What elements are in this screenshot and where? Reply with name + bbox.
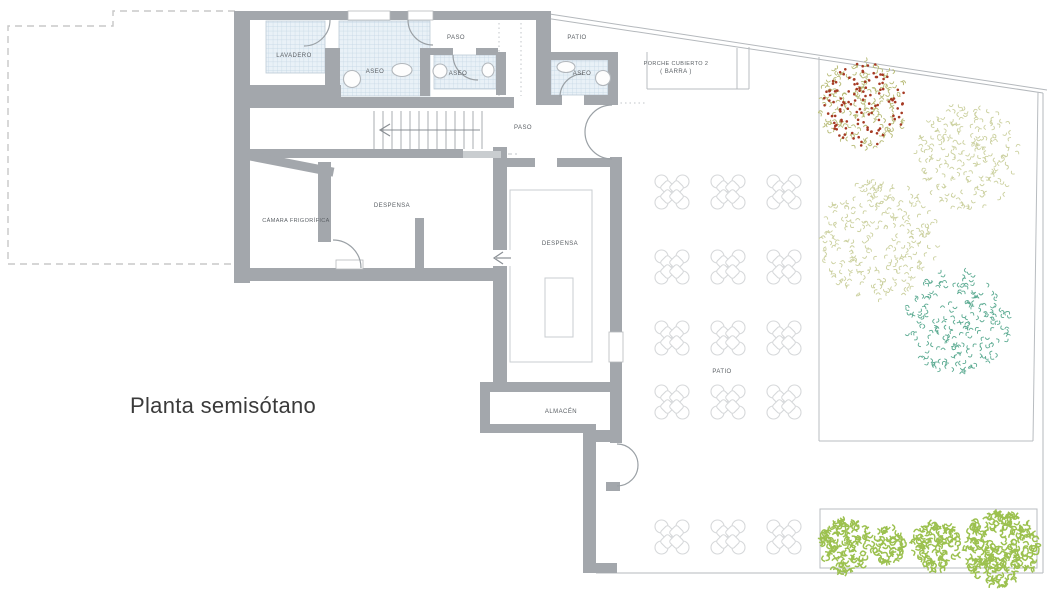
- leaf: [1000, 326, 1004, 331]
- room-label: PORCHE CUBIERTO 2: [644, 61, 709, 67]
- leaf: [971, 154, 976, 158]
- leaf: [857, 229, 862, 233]
- leaf: [927, 210, 931, 214]
- leaf: [899, 126, 904, 129]
- leaf: [825, 119, 830, 123]
- leaf: [895, 259, 898, 264]
- wall-wing-bottom-stub: [583, 563, 617, 573]
- leaf: [849, 111, 851, 116]
- berry: [828, 99, 831, 102]
- leaf: [873, 289, 877, 294]
- leaf: [845, 214, 849, 219]
- leaf: [921, 223, 925, 228]
- window-top-1: [348, 11, 390, 20]
- leaf: [907, 229, 909, 233]
- leaf: [866, 249, 870, 254]
- leaf: [921, 266, 925, 271]
- leaf: [967, 180, 971, 182]
- leaf: [936, 168, 938, 173]
- table-with-chairs: [767, 385, 801, 419]
- leaf: [950, 119, 955, 123]
- leaf: [930, 147, 933, 152]
- leaf: [943, 316, 947, 320]
- berry: [886, 76, 889, 79]
- leaf: [883, 289, 888, 292]
- leaf: [949, 310, 954, 313]
- leaf: [885, 266, 889, 271]
- berry: [868, 79, 871, 82]
- leaf: [990, 306, 995, 309]
- leaf: [978, 307, 981, 312]
- berry: [844, 68, 847, 71]
- wall-aseo3-bottom-a: [536, 95, 562, 105]
- leaf: [1007, 137, 1011, 142]
- leaf: [930, 343, 933, 348]
- leaf: [961, 202, 963, 206]
- leaf: [823, 123, 826, 128]
- leaf: [979, 293, 983, 295]
- leaf: [946, 523, 952, 526]
- leaf: [1001, 310, 1004, 315]
- berry: [853, 78, 856, 81]
- berry: [876, 76, 879, 79]
- berry: [838, 134, 841, 137]
- berry: [878, 92, 881, 95]
- leaf: [1008, 130, 1010, 135]
- bush-1: [818, 516, 875, 576]
- leaf: [877, 528, 880, 534]
- leaf: [918, 158, 921, 163]
- leaf: [945, 153, 950, 157]
- leaf: [898, 265, 901, 270]
- leaf: [949, 104, 954, 107]
- berry: [879, 88, 882, 91]
- berry: [861, 65, 864, 68]
- leaf: [892, 108, 894, 112]
- window-pantry-right: [609, 332, 623, 362]
- leaf: [961, 290, 966, 294]
- leaf: [873, 146, 878, 149]
- wall-camara-right: [318, 162, 331, 242]
- leaf: [853, 102, 857, 107]
- leaf: [916, 200, 921, 203]
- toilet-aseo3: [596, 71, 611, 86]
- leaf: [953, 320, 955, 324]
- leaf: [921, 205, 926, 208]
- leaf: [908, 215, 911, 220]
- leaf: [877, 278, 881, 282]
- leaf: [857, 127, 862, 131]
- leaf: [847, 124, 852, 128]
- table-with-chairs: [767, 520, 801, 554]
- leaf: [967, 272, 972, 275]
- leaf: [969, 280, 973, 282]
- berry: [842, 73, 845, 76]
- table-with-chairs: [711, 520, 745, 554]
- leaf: [983, 150, 986, 155]
- leaf: [964, 268, 967, 273]
- leaf: [859, 261, 863, 266]
- berry: [840, 119, 843, 122]
- toilet-aseo1: [344, 71, 361, 88]
- door-double-patio-b: [617, 465, 638, 486]
- leaf: [877, 298, 881, 302]
- leaf: [919, 323, 922, 328]
- leaf: [845, 200, 849, 205]
- leaf: [849, 224, 854, 228]
- leaf: [974, 362, 978, 367]
- leaf: [860, 565, 866, 568]
- leaf: [909, 541, 915, 545]
- berry: [864, 95, 867, 98]
- leaf: [839, 270, 842, 275]
- room-label: PATIO: [567, 35, 586, 41]
- berry: [860, 144, 863, 147]
- leaf: [826, 80, 831, 83]
- berry: [827, 112, 830, 115]
- leaf: [820, 84, 824, 89]
- leaf: [875, 226, 879, 230]
- leaf: [974, 117, 978, 119]
- leaf: [999, 119, 1002, 124]
- berry: [876, 143, 879, 146]
- berry: [833, 122, 836, 125]
- leaf: [950, 167, 954, 169]
- berry: [858, 89, 861, 92]
- table-with-chairs: [655, 321, 689, 355]
- berry: [856, 82, 859, 85]
- leaf: [995, 111, 999, 115]
- leaf: [972, 343, 977, 347]
- leaf: [870, 232, 873, 237]
- boundary-diagonal-2: [545, 18, 1043, 93]
- leaf: [1004, 339, 1009, 343]
- leaf: [951, 315, 956, 318]
- room-label: ( BARRA ): [660, 69, 692, 75]
- berry: [862, 121, 865, 124]
- leaf: [979, 176, 984, 179]
- leaf: [829, 270, 832, 275]
- leaf: [959, 117, 964, 120]
- leaf: [903, 265, 908, 267]
- sink-aseo1: [392, 64, 412, 77]
- berry: [877, 129, 880, 132]
- leaf: [902, 280, 906, 282]
- wall-stair-bottom: [250, 149, 463, 158]
- room-label: ASEO: [573, 71, 591, 77]
- leaf: [976, 329, 981, 333]
- wall-almacen-top: [480, 382, 612, 392]
- leaf: [867, 192, 872, 195]
- leaf: [937, 368, 941, 373]
- leaf: [837, 75, 841, 79]
- leaf: [894, 255, 898, 259]
- leaf: [925, 351, 930, 354]
- berry: [869, 94, 872, 97]
- leaf: [997, 161, 999, 165]
- leaf: [947, 136, 950, 141]
- wall-aseo2-right: [496, 52, 506, 95]
- berry: [868, 102, 871, 105]
- berry: [874, 105, 877, 108]
- leaf: [980, 184, 984, 186]
- room-label: DESPENSA: [542, 241, 578, 247]
- wall-pantry-top-a: [505, 158, 535, 167]
- leaf: [919, 264, 921, 269]
- leaf: [868, 140, 871, 145]
- leaf: [850, 246, 855, 248]
- room-label: PASO: [514, 125, 532, 131]
- leaf: [950, 205, 955, 209]
- leaf: [863, 275, 865, 280]
- leaf: [907, 287, 909, 292]
- room-label: ASEO: [366, 69, 384, 75]
- berry: [874, 63, 877, 66]
- leaf: [911, 276, 916, 279]
- berry: [870, 130, 873, 133]
- leaf: [867, 535, 873, 538]
- leaf: [896, 241, 901, 245]
- leaf: [847, 569, 853, 571]
- toilet-aseo2: [433, 64, 447, 78]
- leaf: [959, 125, 963, 129]
- table-with-chairs: [711, 175, 745, 209]
- leaf: [936, 134, 941, 138]
- leaf: [988, 343, 992, 348]
- door-leaf-camara: [336, 260, 363, 269]
- leaf: [819, 97, 824, 100]
- leaf: [960, 190, 963, 195]
- leaf: [894, 282, 896, 286]
- berry: [823, 97, 826, 100]
- leaf: [940, 147, 945, 150]
- leaf: [942, 173, 946, 178]
- leaf: [936, 346, 941, 350]
- table-with-chairs: [655, 175, 689, 209]
- leaf: [957, 172, 960, 177]
- leaf: [851, 207, 856, 210]
- berry: [857, 136, 860, 139]
- berry: [860, 111, 863, 114]
- leaf: [980, 195, 984, 197]
- leaf: [989, 351, 992, 356]
- leaf: [821, 556, 825, 562]
- leaf: [990, 327, 994, 331]
- boundary-diagonal-1: [543, 13, 1047, 90]
- leaf: [988, 153, 993, 156]
- leaf: [941, 360, 945, 364]
- berry: [845, 127, 848, 130]
- leaf: [927, 224, 929, 228]
- leaf: [905, 333, 910, 336]
- leaf: [836, 282, 841, 285]
- leaf: [892, 85, 897, 88]
- leaf: [847, 532, 850, 538]
- leaf: [986, 360, 991, 363]
- leaf: [1002, 536, 1007, 542]
- leaf: [913, 203, 917, 208]
- leaf: [931, 358, 933, 363]
- leaf: [984, 136, 988, 141]
- leaf: [984, 191, 987, 196]
- leaf: [842, 123, 847, 126]
- leaf: [915, 297, 917, 302]
- berry: [859, 108, 862, 111]
- leaf: [851, 240, 855, 245]
- leaf: [945, 194, 950, 197]
- leaf: [859, 203, 862, 208]
- berry: [832, 82, 835, 85]
- leaf: [966, 349, 969, 354]
- leaf: [870, 221, 874, 223]
- berry: [897, 89, 900, 92]
- wall-mid: [234, 97, 514, 108]
- berry: [868, 113, 871, 116]
- olive-tree-2: [819, 179, 940, 302]
- wall-left: [234, 11, 250, 283]
- leaf: [860, 189, 865, 192]
- leaf: [947, 301, 952, 305]
- leaf: [862, 139, 865, 144]
- leaf: [924, 314, 929, 318]
- leaf: [939, 141, 943, 146]
- leaf: [997, 196, 1001, 201]
- leaf: [934, 563, 937, 569]
- berry: [834, 115, 837, 118]
- leaf: [851, 211, 856, 214]
- leaf: [910, 230, 913, 235]
- wall-lavadero-bottom: [250, 85, 341, 99]
- berry: [876, 104, 879, 107]
- leaf: [823, 256, 826, 261]
- leaf: [890, 81, 895, 84]
- leaf: [976, 186, 979, 191]
- leaf: [930, 190, 932, 195]
- leaf: [957, 168, 961, 170]
- leaf: [918, 316, 922, 318]
- leaf: [991, 317, 996, 321]
- leaf: [905, 253, 909, 258]
- leaf: [980, 118, 984, 122]
- leaf: [977, 155, 981, 159]
- leaf: [894, 216, 898, 221]
- leaf: [887, 263, 892, 267]
- berry: [896, 107, 899, 110]
- berry: [860, 141, 863, 144]
- leaf: [825, 252, 827, 256]
- berry: [888, 123, 891, 126]
- berry: [894, 101, 897, 104]
- leaf: [982, 204, 987, 208]
- leaf: [961, 342, 964, 347]
- table-with-chairs: [711, 250, 745, 284]
- leaf: [968, 336, 973, 339]
- leaf: [904, 220, 909, 223]
- site-dashed-outline: [8, 11, 235, 264]
- berry: [872, 72, 875, 75]
- leaf: [923, 561, 926, 567]
- leaf: [904, 211, 908, 216]
- wall-pantry-right: [610, 157, 622, 443]
- leaf: [885, 224, 889, 229]
- leaf: [942, 133, 947, 137]
- leaf: [968, 566, 972, 572]
- berry: [865, 86, 868, 89]
- leaf: [826, 555, 831, 561]
- leaf: [957, 283, 959, 288]
- leaf: [841, 217, 844, 222]
- leaf: [924, 356, 929, 360]
- leaf: [931, 121, 935, 126]
- leaf: [941, 320, 946, 323]
- leaf: [991, 291, 994, 296]
- garden-right-edge: [1033, 92, 1038, 441]
- leaf: [848, 269, 853, 271]
- pantry-counters: [510, 190, 592, 362]
- leaf: [927, 228, 929, 232]
- leaf: [926, 341, 929, 346]
- leaf: [1004, 327, 1009, 330]
- leaf: [930, 533, 936, 538]
- wall-aseo1-paso-divider: [420, 48, 430, 96]
- leaf: [859, 185, 864, 189]
- leaf: [943, 336, 946, 341]
- berry: [858, 87, 861, 90]
- leaf: [944, 128, 947, 133]
- leaf: [876, 65, 879, 70]
- leaf: [952, 336, 957, 339]
- leaf: [854, 182, 859, 186]
- leaf: [979, 342, 983, 347]
- room-label: PATIO: [712, 369, 731, 375]
- berry: [882, 134, 885, 137]
- leaf: [930, 136, 934, 140]
- leaf: [859, 281, 864, 285]
- berry: [893, 118, 896, 121]
- leaf: [853, 72, 858, 76]
- leaf: [873, 536, 879, 542]
- leaf: [873, 255, 877, 260]
- leaf: [926, 120, 930, 122]
- leaf: [849, 272, 853, 277]
- leaf: [974, 326, 978, 330]
- leaf: [952, 282, 956, 287]
- leaf: [917, 343, 921, 348]
- berry: [901, 102, 904, 105]
- leaf: [996, 338, 1000, 343]
- leaf: [979, 106, 981, 110]
- leaf: [984, 125, 986, 130]
- leaf: [909, 246, 914, 249]
- leaf: [863, 555, 869, 561]
- leaf: [869, 204, 874, 207]
- berry: [846, 120, 849, 123]
- leaf: [840, 202, 845, 204]
- berry: [857, 119, 860, 122]
- berry: [839, 71, 842, 74]
- leaf: [965, 316, 968, 321]
- leaf: [925, 310, 928, 315]
- room-label: ASEO: [449, 71, 467, 77]
- leaf: [879, 140, 884, 143]
- leaf: [957, 112, 959, 116]
- leaf: [887, 207, 892, 210]
- leaf: [961, 314, 965, 318]
- leaf: [973, 109, 978, 112]
- leaf: [941, 275, 946, 278]
- berry: [862, 71, 865, 74]
- leaf: [893, 223, 896, 228]
